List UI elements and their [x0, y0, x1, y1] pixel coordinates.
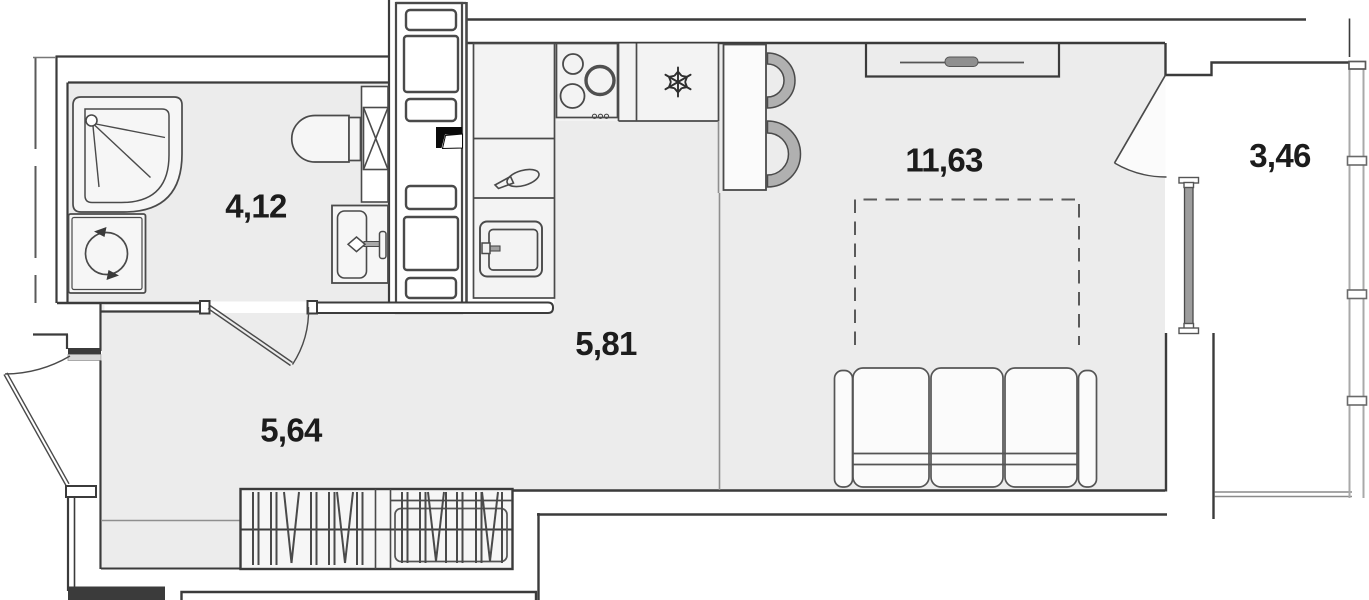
- svg-text:3,46: 3,46: [1249, 137, 1311, 174]
- svg-text:4,12: 4,12: [225, 188, 287, 225]
- svg-text:11,63: 11,63: [905, 142, 983, 179]
- svg-text:5,64: 5,64: [260, 412, 323, 449]
- svg-text:5,81: 5,81: [575, 325, 637, 362]
